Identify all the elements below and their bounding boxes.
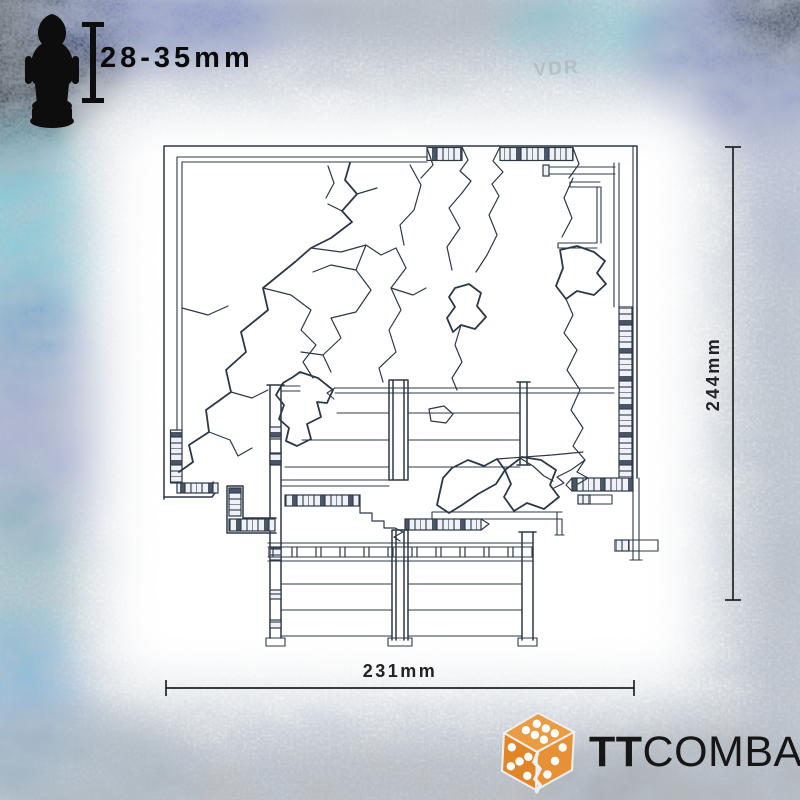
- brand-bold-part: TT: [589, 728, 643, 776]
- cracked-dice-icon: [492, 706, 582, 798]
- width-dimension-label: 231mm: [363, 661, 438, 681]
- brand-wordmark: TTCOMBAT: [589, 731, 800, 774]
- height-dimension: 244mm: [703, 147, 741, 600]
- upper-platform: [266, 380, 614, 646]
- lower-platform: [268, 530, 537, 646]
- width-dimension: 231mm: [166, 661, 634, 696]
- ttcombat-logo: TTCOMBAT: [492, 706, 800, 798]
- miniature-figure-icon: [25, 14, 79, 128]
- scale-range-label: 28-35mm: [100, 42, 254, 75]
- product-image: VDR: [0, 0, 800, 800]
- height-dimension-label: 244mm: [703, 337, 723, 412]
- brand-regular-part: COMBAT: [643, 728, 800, 776]
